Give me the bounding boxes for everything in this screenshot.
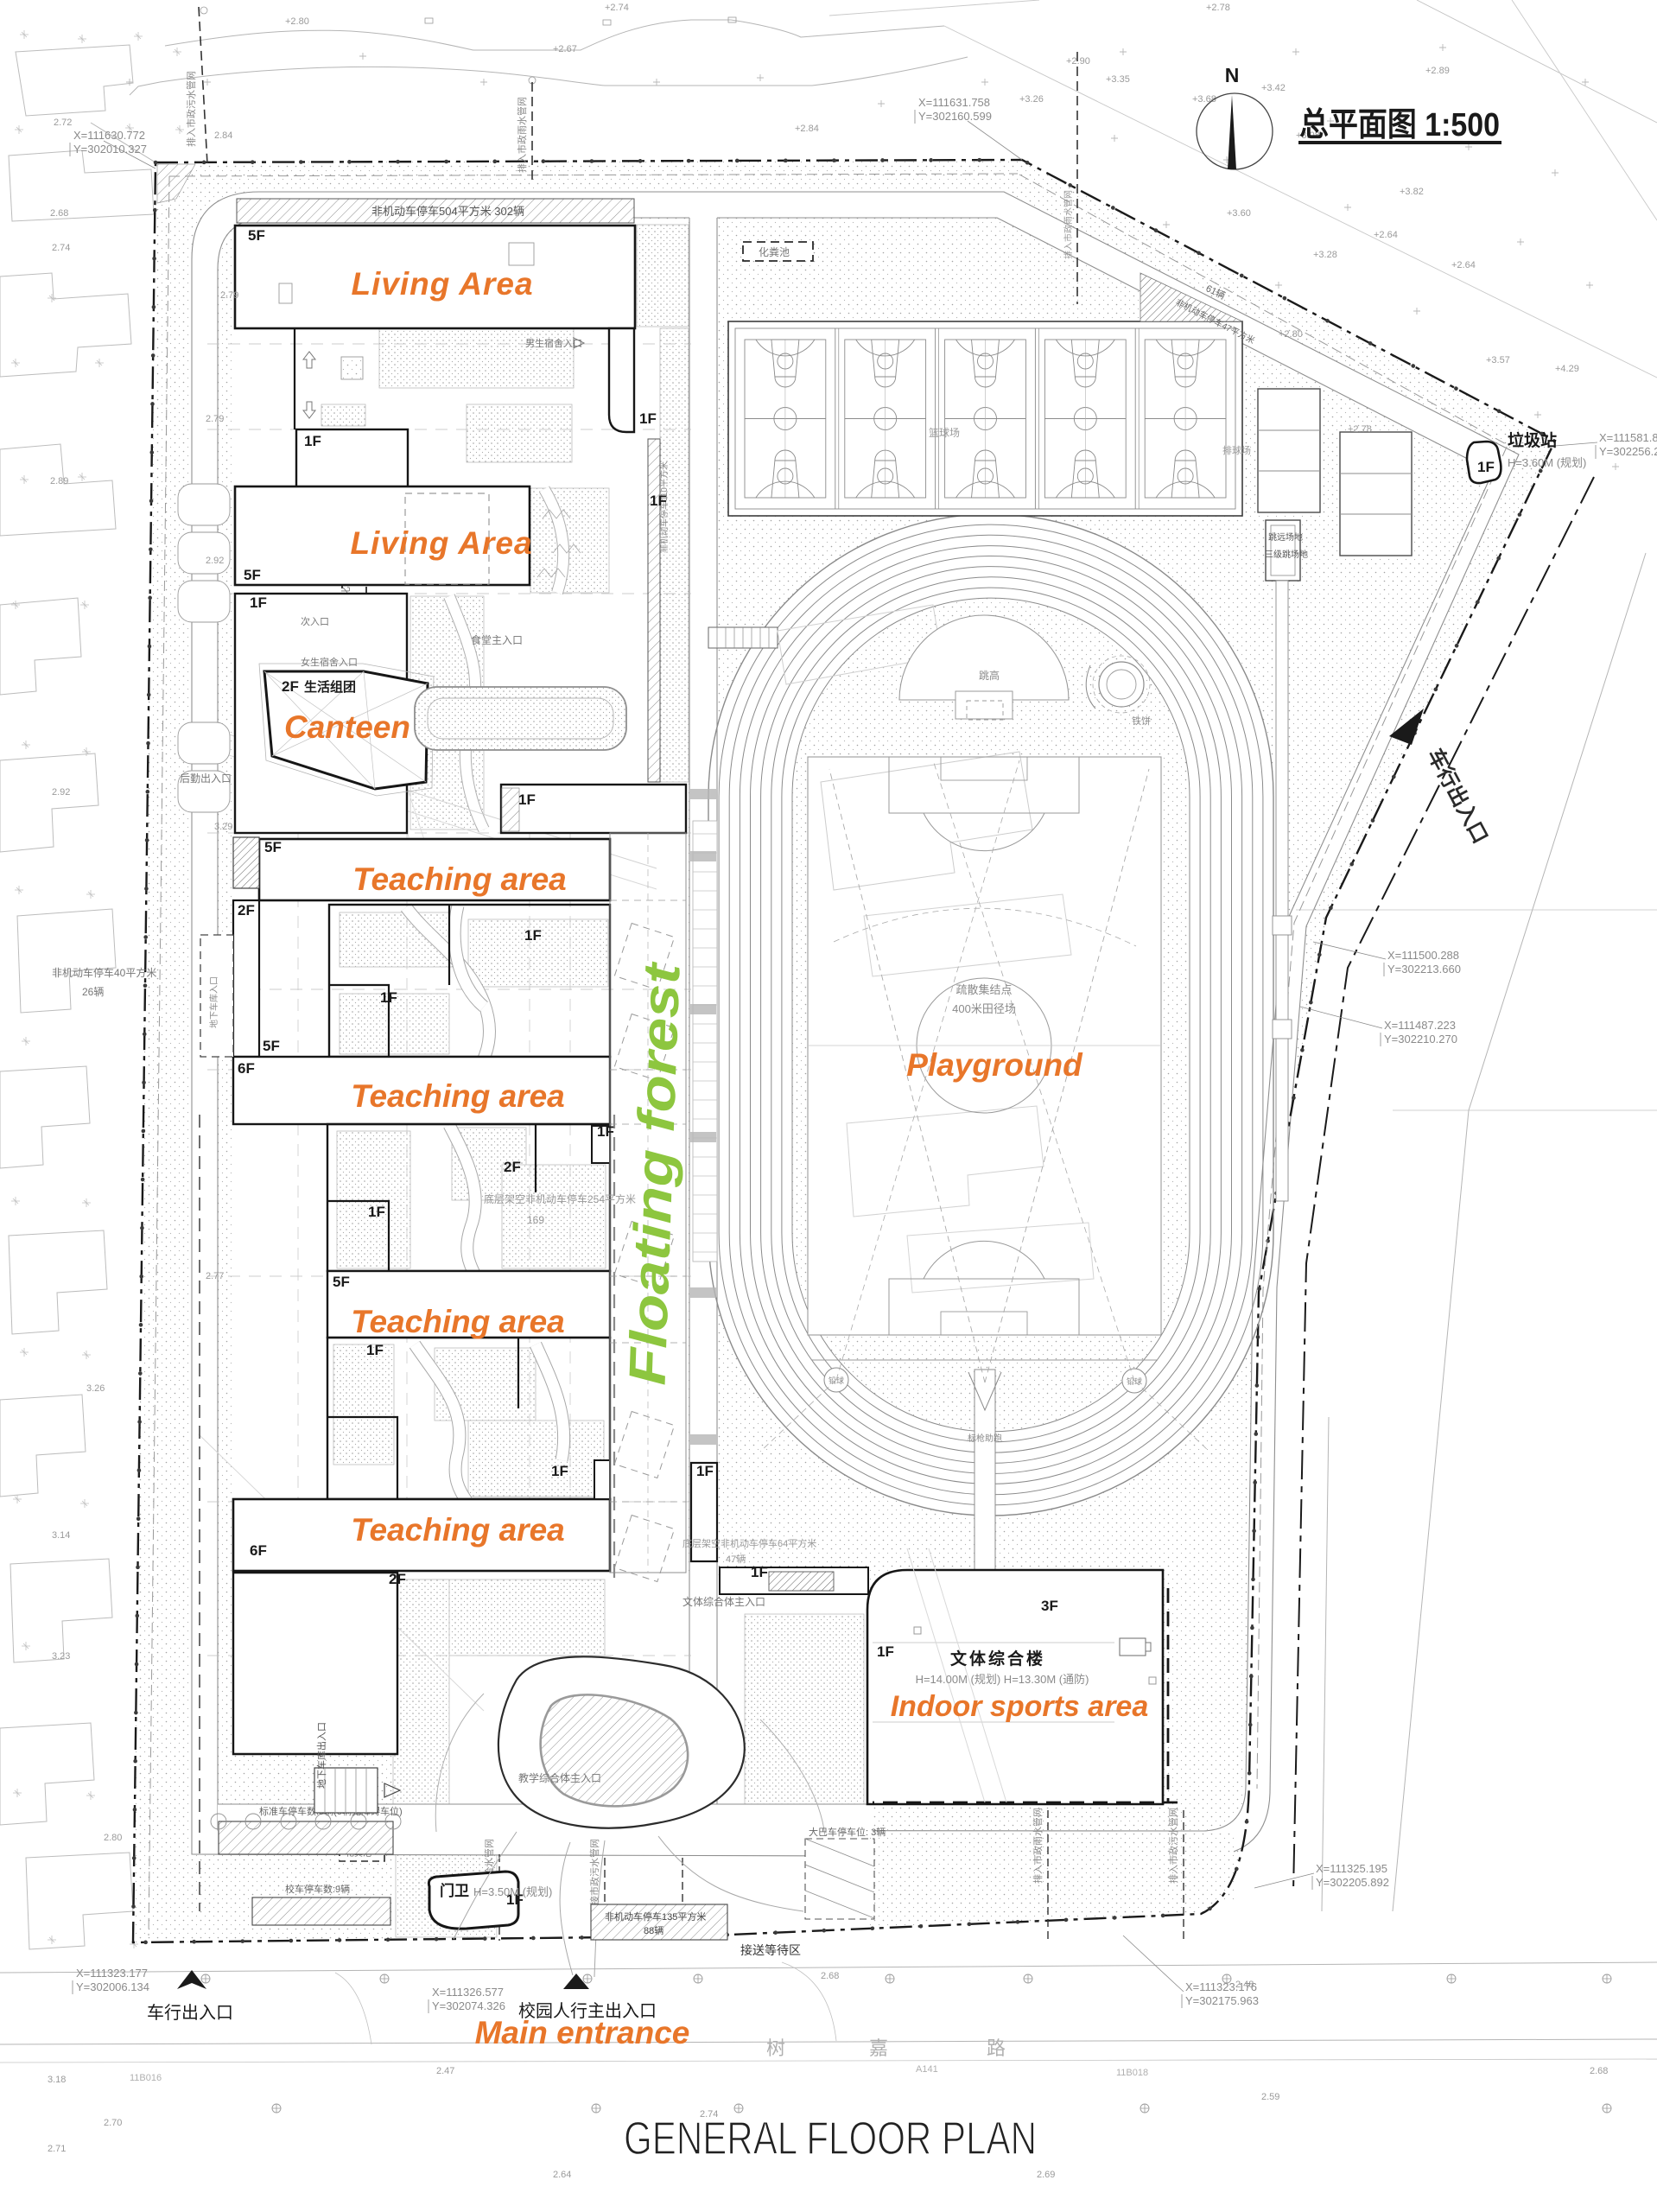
svg-text:26辆: 26辆 [82,986,104,998]
svg-text:+2.64: +2.64 [1451,260,1476,270]
svg-text:地下车库出入口: 地下车库出入口 [315,1722,327,1789]
svg-text:地下车库入口: 地下车库入口 [208,976,219,1028]
svg-text:Playground: Playground [906,1047,1083,1083]
svg-text:2.69: 2.69 [1037,2170,1055,2180]
svg-text:Teaching area: Teaching area [351,1512,564,1548]
svg-text:后勤出入口: 后勤出入口 [180,772,232,785]
svg-text:2F: 2F [389,1571,406,1587]
svg-text:排球场: 排球场 [1222,444,1251,456]
svg-text:+3.42: +3.42 [1261,83,1286,93]
svg-text:门卫: 门卫 [440,1882,469,1899]
svg-text:5F: 5F [263,1038,280,1054]
svg-text:3.26: 3.26 [86,1383,105,1394]
svg-text:+2.80: +2.80 [1279,329,1303,340]
svg-text:1F: 1F [380,989,397,1006]
svg-text:H=14.00M (规划) H=13.30M (通防): H=14.00M (规划) H=13.30M (通防) [916,1673,1089,1686]
svg-text:1F: 1F [696,1463,714,1479]
svg-text:+2.84: +2.84 [795,124,819,134]
svg-text:1F: 1F [524,927,542,944]
svg-text:+3.26: +3.26 [1019,94,1044,105]
svg-text:校车停车数:9辆: 校车停车数:9辆 [285,1883,350,1895]
svg-text:5F: 5F [244,567,261,583]
svg-text:排入市政污水管网: 排入市政污水管网 [185,71,197,147]
svg-text:Y=302210.270: Y=302210.270 [1384,1033,1457,1046]
svg-text:Teaching area: Teaching area [351,1078,564,1114]
svg-text:X=111631.758: X=111631.758 [918,96,990,109]
svg-text:1F: 1F [250,594,267,611]
svg-text:三级跳场地: 三级跳场地 [1265,549,1308,560]
svg-text:Y=302256.222: Y=302256.222 [1599,445,1657,458]
svg-text:A141: A141 [916,2064,938,2075]
svg-text:3.29: 3.29 [214,822,232,832]
svg-text:N: N [1225,64,1240,86]
svg-text:+3.35: +3.35 [1106,74,1130,85]
svg-text:2.47: 2.47 [436,2066,454,2076]
svg-text:5F: 5F [248,227,265,244]
svg-text:2.70: 2.70 [104,2118,122,2128]
svg-text:Y=302205.892: Y=302205.892 [1316,1876,1389,1889]
svg-text:+2.78: +2.78 [1348,424,1372,435]
svg-text:H=3.50M (规划): H=3.50M (规划) [473,1885,552,1898]
svg-text:+3.57: +3.57 [1486,355,1510,365]
svg-text:X=111581.873: X=111581.873 [1599,431,1657,444]
svg-text:生活组团: 生活组团 [304,679,356,695]
svg-text:跳远场地: 跳远场地 [1268,531,1303,543]
svg-text:非机动车停车40平方米: 非机动车停车40平方米 [52,966,156,979]
svg-text:1F: 1F [368,1204,385,1220]
svg-text:Indoor sports area: Indoor sports area [891,1690,1149,1723]
svg-text:1F: 1F [639,410,657,427]
svg-text:底层架空非机动车停车254平方米: 底层架空非机动车停车254平方米 [484,1192,636,1205]
svg-text:2F: 2F [282,678,299,695]
svg-text:+3.68: +3.68 [1192,94,1216,105]
svg-text:Living Area: Living Area [351,266,533,302]
svg-text:2.59: 2.59 [1261,2092,1279,2102]
svg-text:+3.28: +3.28 [1313,250,1337,260]
svg-text:6F: 6F [238,1060,255,1077]
svg-text:车行出入口: 车行出入口 [147,2003,233,2023]
svg-text:2F: 2F [504,1159,521,1175]
svg-text:Teaching area: Teaching area [351,1304,564,1339]
svg-text:男生宿舍入口: 男生宿舍入口 [525,337,582,349]
svg-text:2.77: 2.77 [206,1271,224,1281]
svg-text:底层架空非机动车停车64平方米: 底层架空非机动车停车64平方米 [682,1537,816,1549]
svg-text:2.74: 2.74 [52,243,70,253]
svg-text:2.79: 2.79 [206,414,224,424]
svg-text:+2.80: +2.80 [285,16,309,27]
svg-text:3.14: 3.14 [52,1530,70,1541]
svg-text:Main entrance: Main entrance [475,2015,690,2050]
svg-text:大巴车停车位: 3辆: 大巴车停车位: 3辆 [809,1826,886,1838]
svg-text:11B018: 11B018 [1116,2068,1148,2078]
svg-text:169: 169 [527,1214,544,1226]
svg-text:2.92: 2.92 [52,787,70,798]
svg-text:2.48: 2.48 [1235,1980,1254,1990]
svg-text:+2.64: +2.64 [1374,230,1398,240]
svg-text:+3.82: +3.82 [1400,187,1424,197]
svg-text:2.79: 2.79 [220,290,238,301]
svg-text:树: 树 [766,2037,785,2059]
svg-text:排入市政雨水管网: 排入市政雨水管网 [516,97,528,173]
svg-text:Teaching area: Teaching area [352,861,566,897]
svg-text:非机动车停车504平方米 302辆: 非机动车停车504平方米 302辆 [371,205,524,218]
svg-text:1F: 1F [877,1643,894,1660]
svg-text:6F: 6F [250,1542,267,1559]
svg-text:2F: 2F [238,902,255,918]
svg-text:排入市政污水管网: 排入市政污水管网 [1167,1808,1179,1884]
svg-text:+2.74: +2.74 [605,3,629,13]
svg-text:教学综合体主入口: 教学综合体主入口 [518,1771,601,1784]
svg-text:+2.78: +2.78 [1206,3,1230,13]
svg-text:11B016: 11B016 [130,2073,162,2083]
svg-text:女生宿舍入口: 女生宿舍入口 [301,656,358,668]
svg-text:总平面图 1:500: 总平面图 1:500 [1299,107,1500,143]
svg-text:X=111500.288: X=111500.288 [1387,949,1459,962]
svg-text:垃圾站: 垃圾站 [1508,430,1557,450]
svg-text:Y=302213.660: Y=302213.660 [1387,963,1461,976]
svg-text:1F: 1F [366,1342,384,1358]
svg-text:400米田径场: 400米田径场 [952,1002,1016,1015]
svg-text:X=111487.223: X=111487.223 [1384,1019,1456,1032]
svg-text:食堂主入口: 食堂主入口 [471,633,523,646]
svg-text:1F: 1F [650,493,667,509]
svg-text:2.68: 2.68 [1590,2066,1608,2076]
svg-text:1F: 1F [751,1564,768,1580]
svg-text:5F: 5F [264,839,282,855]
svg-text:疏散集结点: 疏散集结点 [955,983,1012,996]
svg-text:Y=302074.326: Y=302074.326 [432,1999,505,2012]
svg-text:化粪池: 化粪池 [759,246,790,258]
svg-text:铁饼: 铁饼 [1132,715,1151,727]
svg-text:3F: 3F [1041,1598,1058,1614]
svg-text:2.89: 2.89 [50,476,68,486]
svg-text:Living Area: Living Area [350,525,532,561]
svg-text:1F: 1F [551,1463,568,1479]
svg-text:H=3.60M (规划): H=3.60M (规划) [1508,456,1586,469]
svg-text:3.18: 3.18 [48,2075,66,2085]
svg-text:+2.90: +2.90 [1066,56,1090,67]
svg-text:Canteen: Canteen [284,709,410,745]
svg-text:X=111325.195: X=111325.195 [1316,1862,1387,1875]
svg-text:+2.89: +2.89 [1425,66,1450,76]
svg-text:跳高: 跳高 [979,669,1000,682]
svg-text:嘉: 嘉 [869,2037,888,2059]
svg-text:X=111323.177: X=111323.177 [76,1967,148,1980]
svg-text:路: 路 [987,2037,1006,2059]
svg-text:+4.29: +4.29 [1555,364,1579,374]
svg-text:GENERAL FLOOR PLAN: GENERAL FLOOR PLAN [624,2113,1037,2164]
svg-text:排入市政雨水管网: 排入市政雨水管网 [1063,190,1074,259]
svg-text:Y=302175.963: Y=302175.963 [1185,1994,1259,2007]
svg-text:88辆: 88辆 [644,1924,663,1936]
svg-text:X=111326.577: X=111326.577 [432,1986,504,1999]
svg-text:2.64: 2.64 [553,2170,571,2180]
svg-text:次入口: 次入口 [301,615,329,627]
svg-text:2.92: 2.92 [206,556,224,566]
svg-text:2.68: 2.68 [821,1971,839,1981]
svg-text:2.80: 2.80 [104,1833,122,1843]
svg-text:1F: 1F [597,1123,614,1140]
svg-text:+2.67: +2.67 [553,44,577,54]
svg-text:1F: 1F [1477,459,1495,475]
svg-text:1F: 1F [304,433,321,449]
svg-text:1F: 1F [518,791,536,808]
svg-text:标枪助跑: 标枪助跑 [968,1433,1002,1444]
svg-text:Y=302006.134: Y=302006.134 [76,1980,149,1993]
svg-text:接送等待区: 接送等待区 [740,1943,801,1957]
svg-text:Y=302160.599: Y=302160.599 [918,110,992,123]
svg-text:文体综合体主入口: 文体综合体主入口 [682,1595,765,1608]
svg-text:5F: 5F [333,1274,350,1290]
svg-text:2.84: 2.84 [214,130,232,141]
svg-text:文体综合楼: 文体综合楼 [950,1649,1045,1669]
svg-text:非机动车停车135平方米: 非机动车停车135平方米 [605,1910,706,1923]
svg-text:2.72: 2.72 [54,118,72,128]
svg-text:3.23: 3.23 [52,1651,70,1662]
svg-text:+3.60: +3.60 [1227,208,1251,219]
svg-text:X=111630.772: X=111630.772 [73,129,145,142]
svg-text:2.71: 2.71 [48,2144,66,2154]
svg-text:排入市政雨水管网: 排入市政雨水管网 [1032,1808,1044,1884]
svg-text:篮球场: 篮球场 [929,426,960,439]
svg-text:47辆: 47辆 [726,1553,746,1565]
svg-text:2.68: 2.68 [50,208,68,219]
